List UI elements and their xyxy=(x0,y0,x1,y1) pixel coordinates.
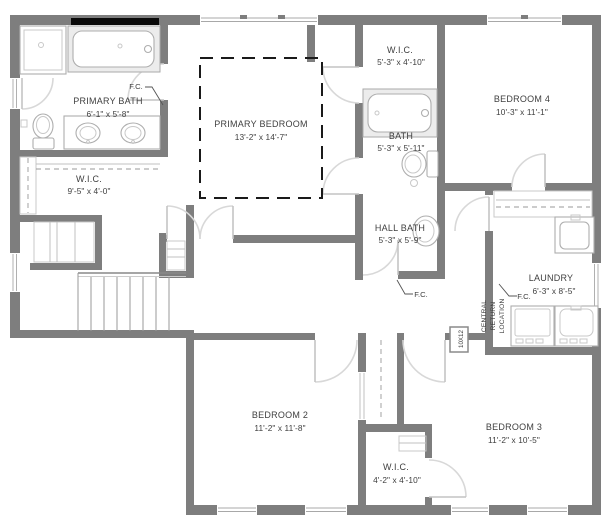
room-dims-primary-bedroom: 13'-2" x 14'-7" xyxy=(235,132,288,142)
hall-linen-closet xyxy=(34,222,94,262)
room-label-primary-bath: PRIMARY BATH xyxy=(73,96,143,106)
door-hall-bath xyxy=(363,240,398,275)
window-bedroom3-b xyxy=(527,505,568,515)
bathtub-hall xyxy=(363,89,437,137)
fc-note-laundry: F.C. xyxy=(517,292,531,301)
floor-plan-drawing: PRIMARY BATH 6'-1" x 5'-8" PRIMARY BEDRO… xyxy=(0,0,612,521)
room-label-bedroom2: BEDROOM 2 xyxy=(252,410,308,420)
toilet-bath xyxy=(402,151,438,187)
duct-size-label: 10X12 xyxy=(458,330,465,348)
washer xyxy=(511,306,554,346)
room-dims-bedroom2: 11'-2" x 11'-8" xyxy=(254,423,305,433)
central-return-note: CENTRAL RETURN LOCATION xyxy=(481,299,506,334)
fc-note-hall: F.C. xyxy=(414,290,428,299)
door-bath xyxy=(323,158,359,194)
soffit-bar xyxy=(71,18,159,25)
door-stair-hall xyxy=(167,206,200,239)
wic-bedroom3-shelf xyxy=(399,436,426,451)
utility-sink xyxy=(555,215,594,253)
central-return-line2: RETURN xyxy=(490,302,497,331)
door-wic-upper xyxy=(323,67,359,103)
room-label-bedroom4: BEDROOM 4 xyxy=(494,94,550,104)
window-bedroom2-b xyxy=(305,505,347,515)
window-primary-bath xyxy=(10,78,20,109)
window-primary-bedroom xyxy=(200,15,318,25)
room-label-wic-bedroom3: W.I.C. xyxy=(383,462,409,472)
room-dims-wic-upper: 5'-3" x 4'-10" xyxy=(377,57,425,67)
central-return-line3: LOCATION xyxy=(499,299,506,334)
window-bedroom3-a xyxy=(451,505,489,515)
room-label-primary-bedroom: PRIMARY BEDROOM xyxy=(214,119,307,129)
door-bedroom4 xyxy=(512,154,545,187)
room-label-bath: BATH xyxy=(389,131,413,141)
stair-closet xyxy=(167,241,185,270)
room-dims-bedroom3: 11'-2" x 10'-5" xyxy=(488,435,540,445)
door-laundry xyxy=(455,197,489,231)
room-label-bedroom3: BEDROOM 3 xyxy=(486,422,542,432)
room-dims-wic-bedroom3: 4'-2" x 4'-10" xyxy=(373,475,421,485)
bathtub-primary xyxy=(68,26,160,72)
room-label-laundry: LAUNDRY xyxy=(529,273,574,283)
toilet-primary xyxy=(21,114,54,149)
door-bedroom2 xyxy=(315,340,357,382)
vanity-double-sink xyxy=(64,116,160,149)
room-dims-primary-bath: 6'-1" x 5'-8" xyxy=(86,109,129,119)
shower xyxy=(20,26,66,74)
linen-closet-laundry xyxy=(494,191,592,217)
floor-plan-page: PRIMARY BATH 6'-1" x 5'-8" PRIMARY BEDRO… xyxy=(0,0,612,521)
dryer xyxy=(555,306,598,346)
room-dims-bath: 5'-3" x 5'-11" xyxy=(377,143,424,153)
room-label-wic-upper: W.I.C. xyxy=(387,45,413,55)
room-label-wic-primary: W.I.C. xyxy=(76,174,102,184)
window-stairwell xyxy=(10,253,20,292)
room-dims-laundry: 6'-3" x 8'-5" xyxy=(532,286,575,296)
door-wic-bedroom3 xyxy=(429,460,466,497)
window-laundry xyxy=(592,263,601,308)
room-dims-hall-bath: 5'-3" x 5'-9" xyxy=(378,235,421,245)
duct-size-note: 10X12 xyxy=(458,330,465,348)
stairs xyxy=(78,273,186,331)
room-dims-wic-primary: 9'-5" x 4'-0" xyxy=(67,186,110,196)
room-label-hall-bath: HALL BATH xyxy=(375,223,425,233)
window-bedroom2-a xyxy=(217,505,257,515)
door-bypass-closet xyxy=(360,373,364,419)
fc-note-primary-bath: F.C. xyxy=(129,82,143,91)
door-water-closet xyxy=(22,78,53,109)
door-primary-bedroom xyxy=(200,206,233,239)
central-return-line1: CENTRAL xyxy=(481,300,488,332)
room-dims-bedroom4: 10'-3" x 11'-1" xyxy=(496,107,548,117)
door-bedroom3 xyxy=(403,340,445,382)
window-bedroom4 xyxy=(487,15,562,25)
